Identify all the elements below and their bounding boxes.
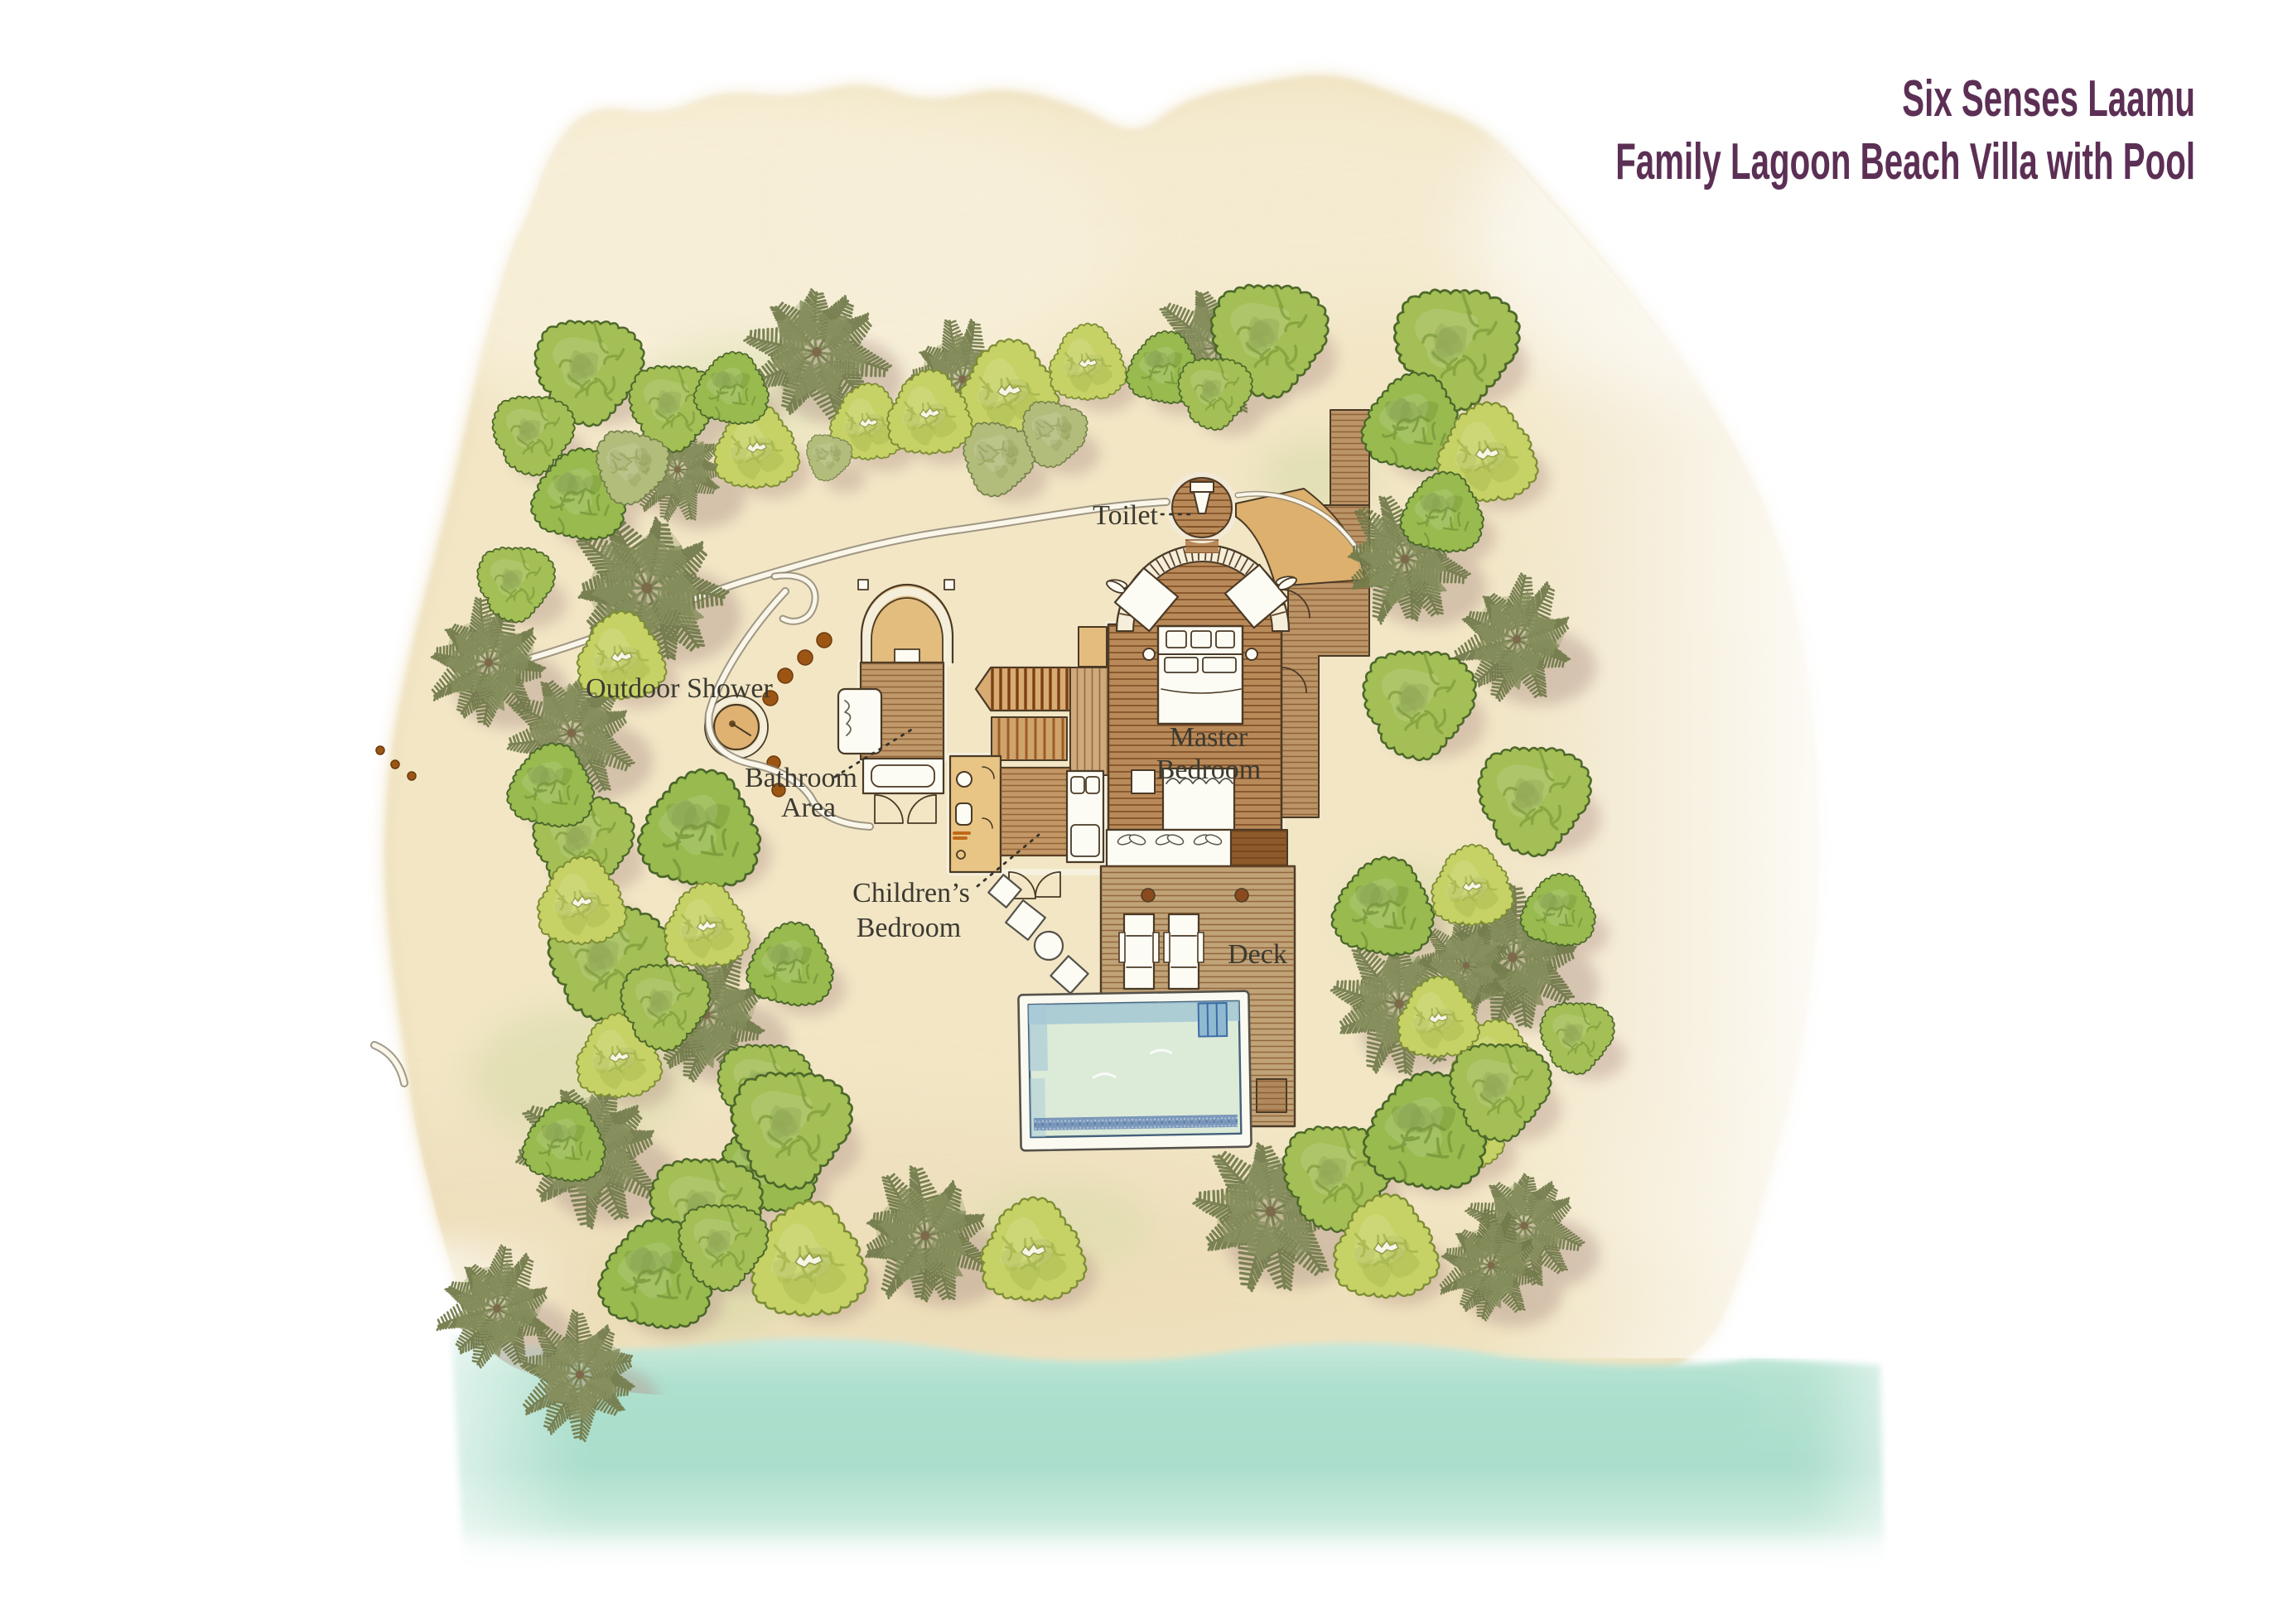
svg-text:Family Lagoon Beach Villa with: Family Lagoon Beach Villa with Pool xyxy=(1615,133,2195,190)
svg-text:Children’s: Children’s xyxy=(852,878,970,908)
svg-text:Six Senses Laamu: Six Senses Laamu xyxy=(1902,70,2195,128)
svg-text:Toilet: Toilet xyxy=(1093,500,1158,531)
svg-text:Master: Master xyxy=(1170,722,1248,753)
svg-text:Bathroom: Bathroom xyxy=(745,763,857,793)
svg-text:Outdoor Shower: Outdoor Shower xyxy=(586,673,773,704)
svg-text:Bedroom: Bedroom xyxy=(857,913,962,943)
svg-text:Deck: Deck xyxy=(1228,939,1287,970)
svg-text:Bedroom: Bedroom xyxy=(1156,754,1262,785)
svg-text:Area: Area xyxy=(781,793,836,823)
